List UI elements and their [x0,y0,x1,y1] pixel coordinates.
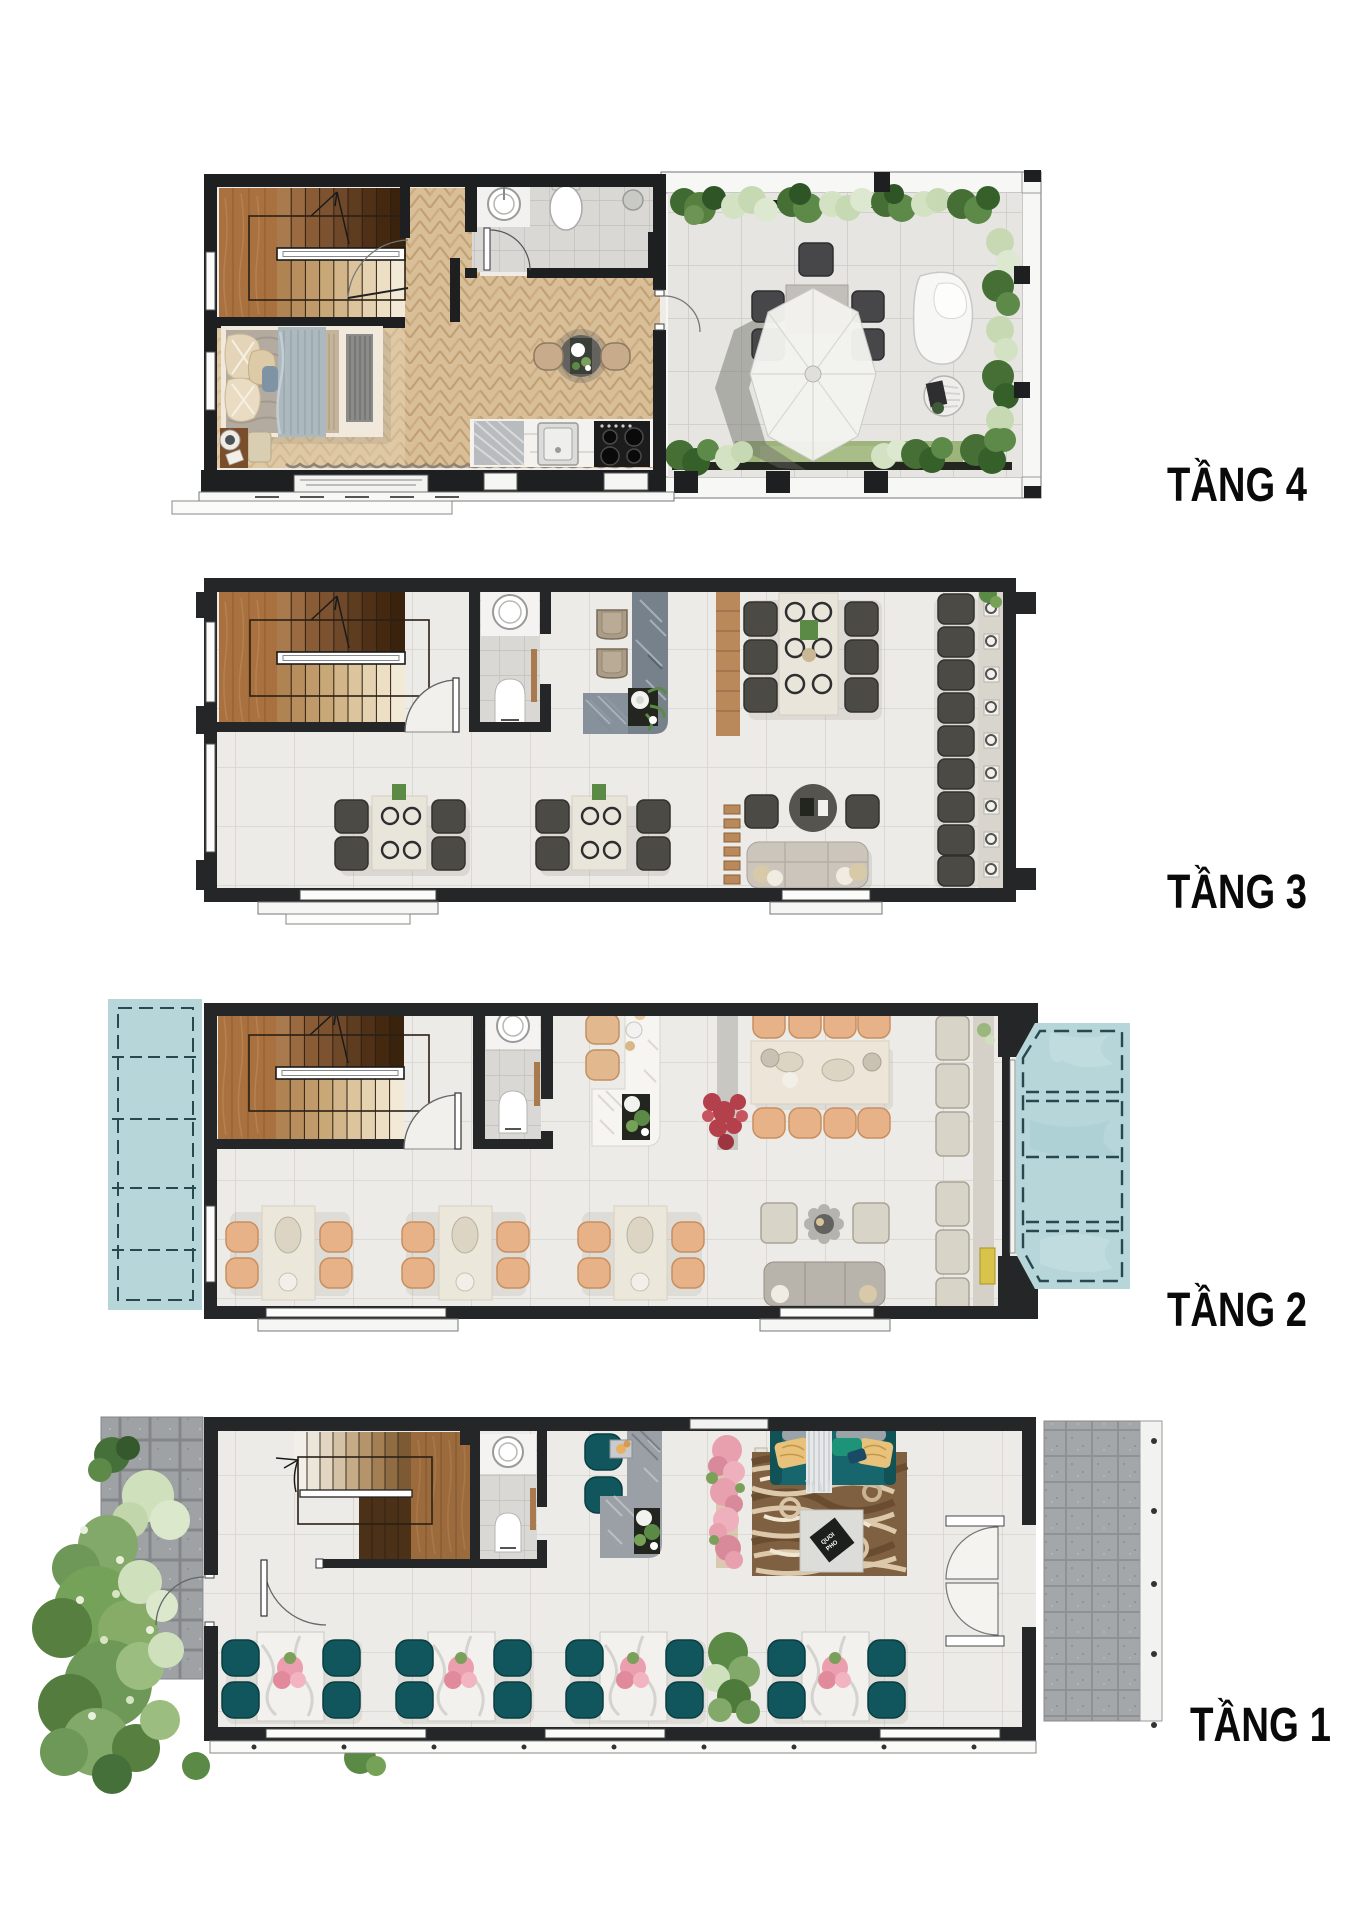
svg-text:TẦNG 4: TẦNG 4 [1167,458,1307,512]
svg-text:TẦNG 1: TẦNG 1 [1190,1698,1331,1752]
svg-text:TẦNG 2: TẦNG 2 [1167,1283,1307,1337]
svg-text:TẦNG 3: TẦNG 3 [1167,865,1307,919]
